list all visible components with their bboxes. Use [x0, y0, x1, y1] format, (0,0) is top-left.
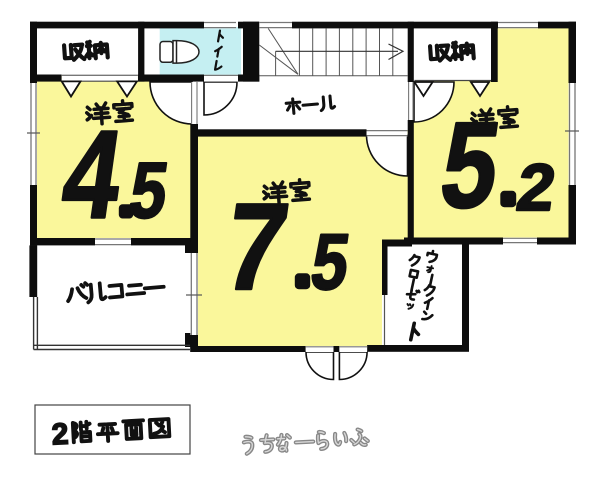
svg-text:2: 2 — [51, 418, 69, 452]
